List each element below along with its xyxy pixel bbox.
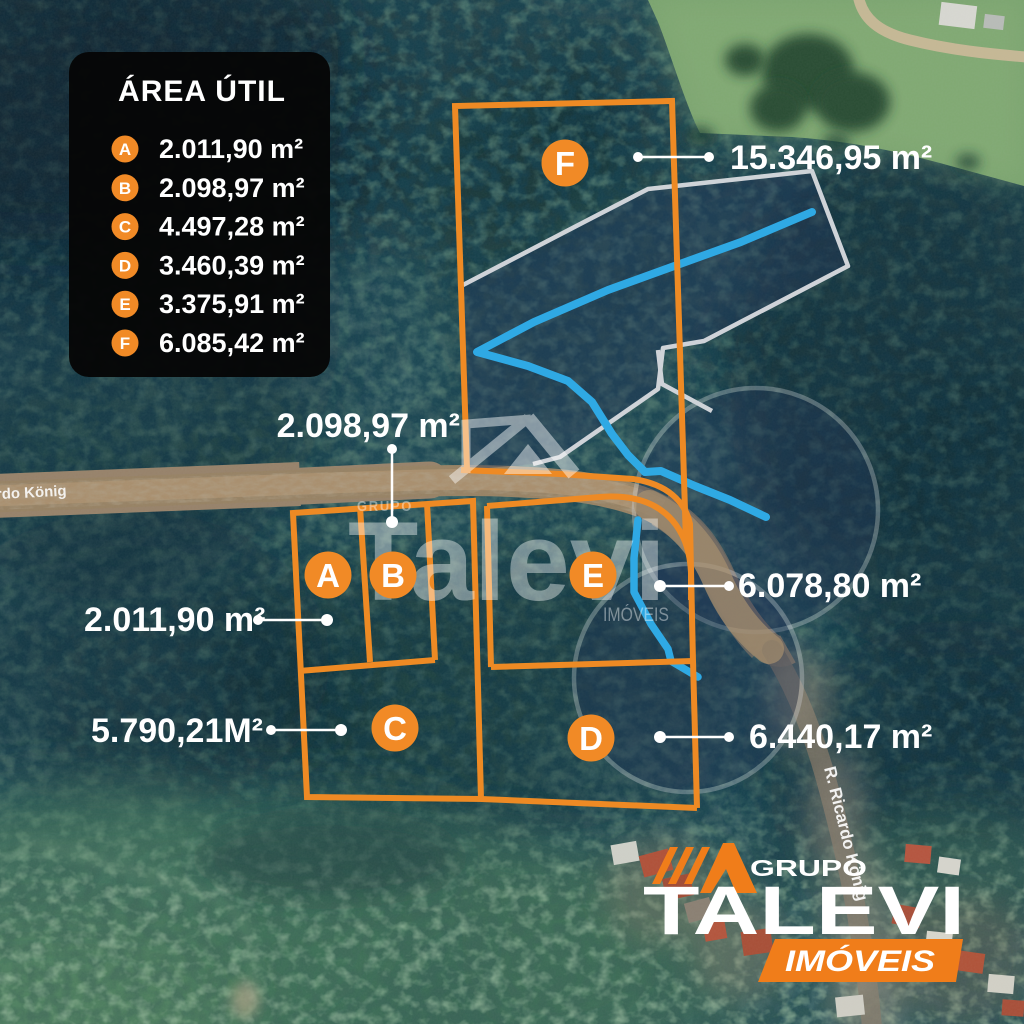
svg-text:ÁREA ÚTIL: ÁREA ÚTIL [118,74,286,108]
svg-text:2.098,97 m²: 2.098,97 m² [159,173,305,203]
svg-text:A: A [119,140,131,159]
svg-text:TALEVI: TALEVI [643,872,965,949]
svg-text:5.790,21M²: 5.790,21M² [91,712,263,750]
svg-text:C: C [383,710,407,747]
svg-text:2.011,90 m²: 2.011,90 m² [84,601,265,639]
svg-text:6.078,80 m²: 6.078,80 m² [738,567,921,605]
svg-text:F: F [120,334,130,353]
svg-text:B: B [119,179,131,198]
svg-text:2.011,90 m²: 2.011,90 m² [159,134,303,164]
svg-text:D: D [579,720,603,757]
svg-text:6.440,17 m²: 6.440,17 m² [749,718,932,756]
svg-text:3.375,91 m²: 3.375,91 m² [159,289,305,319]
svg-text:2.098,97 m²: 2.098,97 m² [277,407,460,445]
svg-text:D: D [119,256,131,275]
svg-text:15.346,95 m²: 15.346,95 m² [730,139,932,177]
svg-text:3.460,39 m²: 3.460,39 m² [159,250,305,280]
svg-text:A: A [316,557,340,594]
svg-text:IMÓVEIS: IMÓVEIS [785,944,935,978]
svg-text:IMÓVEIS: IMÓVEIS [603,604,669,626]
svg-text:F: F [555,145,575,182]
svg-text:B: B [381,557,405,594]
svg-text:6.085,42 m²: 6.085,42 m² [159,328,305,358]
svg-text:E: E [582,557,604,594]
svg-text:4.497,28 m²: 4.497,28 m² [159,212,305,242]
svg-text:E: E [119,295,130,314]
svg-text:C: C [119,218,131,237]
